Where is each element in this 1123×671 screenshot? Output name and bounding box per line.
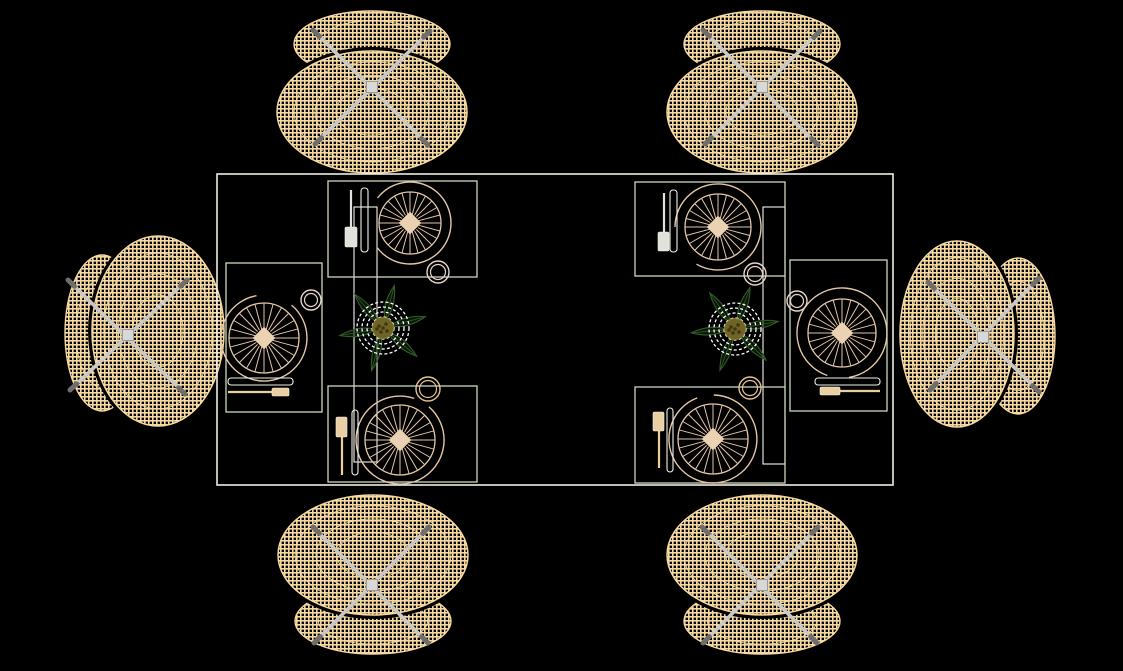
plate-spoke: [715, 448, 722, 473]
table-outline: [217, 174, 893, 485]
chair-seat-mesh: [277, 51, 467, 173]
plate-spoke: [727, 218, 750, 224]
chair-leg-hub: [367, 580, 378, 591]
flower-speck: [379, 330, 383, 334]
flower-speck: [729, 325, 733, 329]
plate-spoke: [809, 335, 833, 341]
flower-speck: [737, 330, 741, 334]
flower-speck: [733, 327, 737, 331]
cad-drawing-viewport[interactable]: [0, 0, 1123, 671]
place-setting-left[interactable]: [221, 263, 322, 412]
cup-inner: [748, 267, 763, 282]
flower-speck: [381, 326, 385, 330]
chair-seat-mesh: [900, 241, 1014, 427]
plate-spoke: [679, 441, 704, 448]
chair-right[interactable]: [896, 237, 1055, 431]
chair-seat-mesh: [667, 495, 857, 615]
plate-spoke: [704, 405, 711, 430]
centerpiece-right[interactable]: [691, 288, 778, 371]
plate-spoke: [722, 441, 747, 448]
centerpiece-left[interactable]: [340, 285, 426, 370]
chair-seat-mesh: [667, 51, 857, 173]
leaf-vein: [355, 294, 378, 322]
cup-inner: [791, 295, 804, 308]
chair-leg-hub: [757, 580, 768, 591]
place-setting-bottom-left[interactable]: [328, 377, 477, 484]
plate-spoke: [722, 430, 747, 437]
plate-spoke: [402, 449, 409, 474]
plate-spoke: [709, 236, 715, 259]
chair-left[interactable]: [65, 232, 228, 430]
chair-seat-mesh: [92, 236, 224, 426]
cup-inner: [743, 381, 758, 396]
flower-speck: [385, 329, 389, 333]
flower-speck: [727, 328, 731, 332]
plate-spoke: [409, 442, 434, 449]
plate-spoke: [809, 324, 833, 330]
drawing-canvas[interactable]: [0, 0, 1123, 671]
plate-spoke: [844, 300, 850, 324]
plate-spoke: [230, 329, 255, 336]
plate-spoke: [391, 406, 398, 431]
plate-spoke: [366, 431, 391, 438]
knife: [815, 378, 880, 385]
chair-leg-cap: [68, 280, 74, 286]
plate-spoke: [366, 442, 391, 449]
plate-spoke: [266, 304, 273, 329]
chair-leg-hub: [757, 82, 768, 93]
plate-spoke: [833, 342, 839, 366]
fork-handle: [658, 232, 669, 251]
flower-speck: [736, 323, 740, 327]
cup-inner: [305, 294, 318, 307]
plate-spoke: [409, 431, 434, 438]
fork-handle: [272, 388, 289, 396]
chair-leg-hub: [978, 332, 989, 343]
plate-spoke: [255, 304, 262, 329]
plate-spoke: [851, 324, 875, 330]
plate-spoke: [402, 406, 409, 431]
plate-spoke: [851, 335, 875, 341]
plate-spoke: [844, 342, 850, 366]
plate-spoke: [391, 449, 398, 474]
knife: [667, 408, 673, 472]
chair-leg-hub: [123, 330, 134, 341]
cup-inner: [420, 381, 437, 398]
plate-spoke: [715, 405, 722, 430]
plate-spoke: [273, 340, 298, 347]
chair-top-right[interactable]: [663, 11, 861, 177]
fork-handle: [820, 387, 840, 395]
place-setting-top-left[interactable]: [328, 181, 477, 283]
chair-bottom-right[interactable]: [663, 491, 861, 654]
chair-leg-hub: [367, 82, 378, 93]
flower-speck: [384, 322, 388, 326]
table-panel: [763, 207, 785, 464]
flower-speck: [375, 327, 379, 331]
plate-spoke: [266, 347, 273, 372]
dining-table[interactable]: [217, 174, 893, 485]
plate-spoke: [679, 430, 704, 437]
plate-spoke: [255, 347, 262, 372]
fork-handle: [336, 417, 347, 437]
flower-speck: [377, 324, 381, 328]
chair-bottom-left[interactable]: [274, 491, 472, 654]
knife: [352, 410, 358, 475]
plate-spoke: [686, 218, 709, 224]
chair-seat-mesh: [278, 495, 468, 615]
plate-spoke: [230, 340, 255, 347]
plate-spoke: [727, 229, 750, 235]
plate-spoke: [709, 195, 715, 218]
knife: [361, 188, 368, 252]
plate-spoke: [720, 195, 726, 218]
plate-spoke: [704, 448, 711, 473]
plate-spoke: [720, 236, 726, 259]
fork-handle: [345, 227, 357, 247]
place-setting-right[interactable]: [787, 260, 887, 411]
plate-spoke: [833, 300, 839, 324]
flower-speck: [731, 331, 735, 335]
fork-handle: [653, 412, 664, 431]
plate-spoke: [686, 229, 709, 235]
chair-top-left[interactable]: [273, 11, 471, 177]
plate-spoke: [273, 329, 298, 336]
